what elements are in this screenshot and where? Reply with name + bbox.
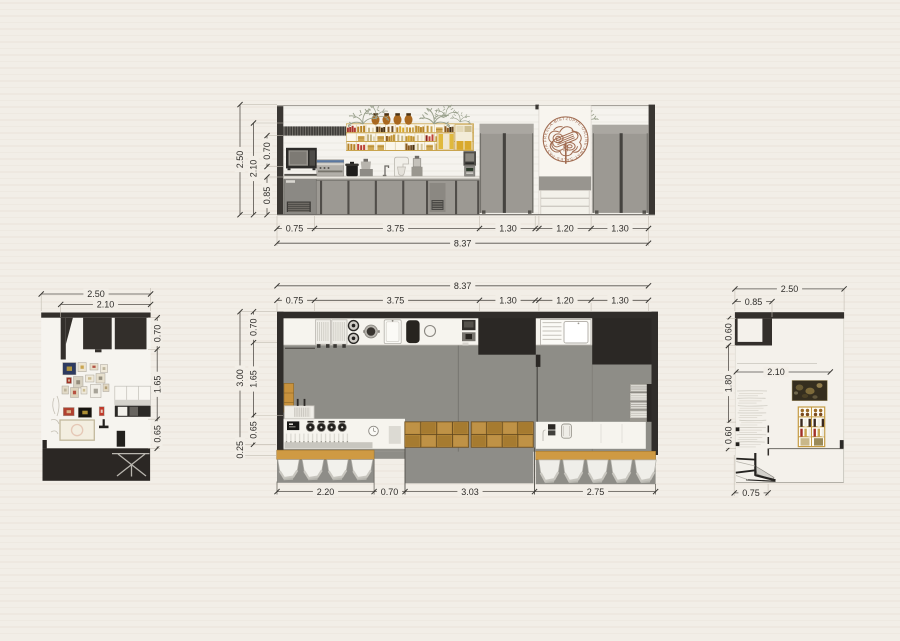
svg-text:2.10: 2.10 bbox=[767, 367, 785, 377]
svg-text:0.60: 0.60 bbox=[724, 427, 734, 445]
svg-text:3.03: 3.03 bbox=[461, 487, 479, 497]
svg-text:1.30: 1.30 bbox=[499, 296, 517, 306]
svg-text:0.70: 0.70 bbox=[381, 487, 399, 497]
svg-text:8.37: 8.37 bbox=[454, 238, 472, 248]
svg-text:1.30: 1.30 bbox=[499, 224, 517, 234]
svg-text:1.30: 1.30 bbox=[611, 296, 629, 306]
svg-text:3.75: 3.75 bbox=[387, 224, 405, 234]
svg-text:2.50: 2.50 bbox=[235, 151, 245, 169]
svg-text:2.50: 2.50 bbox=[87, 289, 105, 299]
svg-text:0.25: 0.25 bbox=[235, 441, 245, 459]
svg-text:0.75: 0.75 bbox=[742, 488, 760, 498]
svg-text:8.37: 8.37 bbox=[454, 281, 472, 291]
svg-text:0.75: 0.75 bbox=[286, 224, 304, 234]
svg-text:0.85: 0.85 bbox=[745, 297, 763, 307]
svg-text:2.10: 2.10 bbox=[97, 300, 115, 310]
svg-text:3.75: 3.75 bbox=[387, 296, 405, 306]
svg-text:1.20: 1.20 bbox=[556, 224, 574, 234]
svg-text:2.10: 2.10 bbox=[249, 160, 259, 178]
svg-text:2.20: 2.20 bbox=[317, 487, 335, 497]
svg-text:0.70: 0.70 bbox=[152, 325, 162, 343]
svg-text:2.75: 2.75 bbox=[587, 487, 605, 497]
svg-text:0.65: 0.65 bbox=[249, 421, 259, 439]
svg-text:1.30: 1.30 bbox=[611, 224, 629, 234]
svg-text:1.80: 1.80 bbox=[724, 375, 734, 393]
svg-text:1.65: 1.65 bbox=[152, 376, 162, 394]
svg-text:0.60: 0.60 bbox=[724, 323, 734, 341]
svg-text:0.70: 0.70 bbox=[262, 142, 272, 160]
svg-text:2.50: 2.50 bbox=[781, 284, 799, 294]
svg-text:0.85: 0.85 bbox=[262, 187, 272, 205]
svg-text:0.70: 0.70 bbox=[249, 318, 259, 336]
svg-text:0.75: 0.75 bbox=[286, 296, 304, 306]
svg-text:1.20: 1.20 bbox=[556, 296, 574, 306]
svg-text:3.00: 3.00 bbox=[235, 369, 245, 387]
svg-text:0.65: 0.65 bbox=[152, 425, 162, 443]
svg-text:1.65: 1.65 bbox=[249, 370, 259, 388]
